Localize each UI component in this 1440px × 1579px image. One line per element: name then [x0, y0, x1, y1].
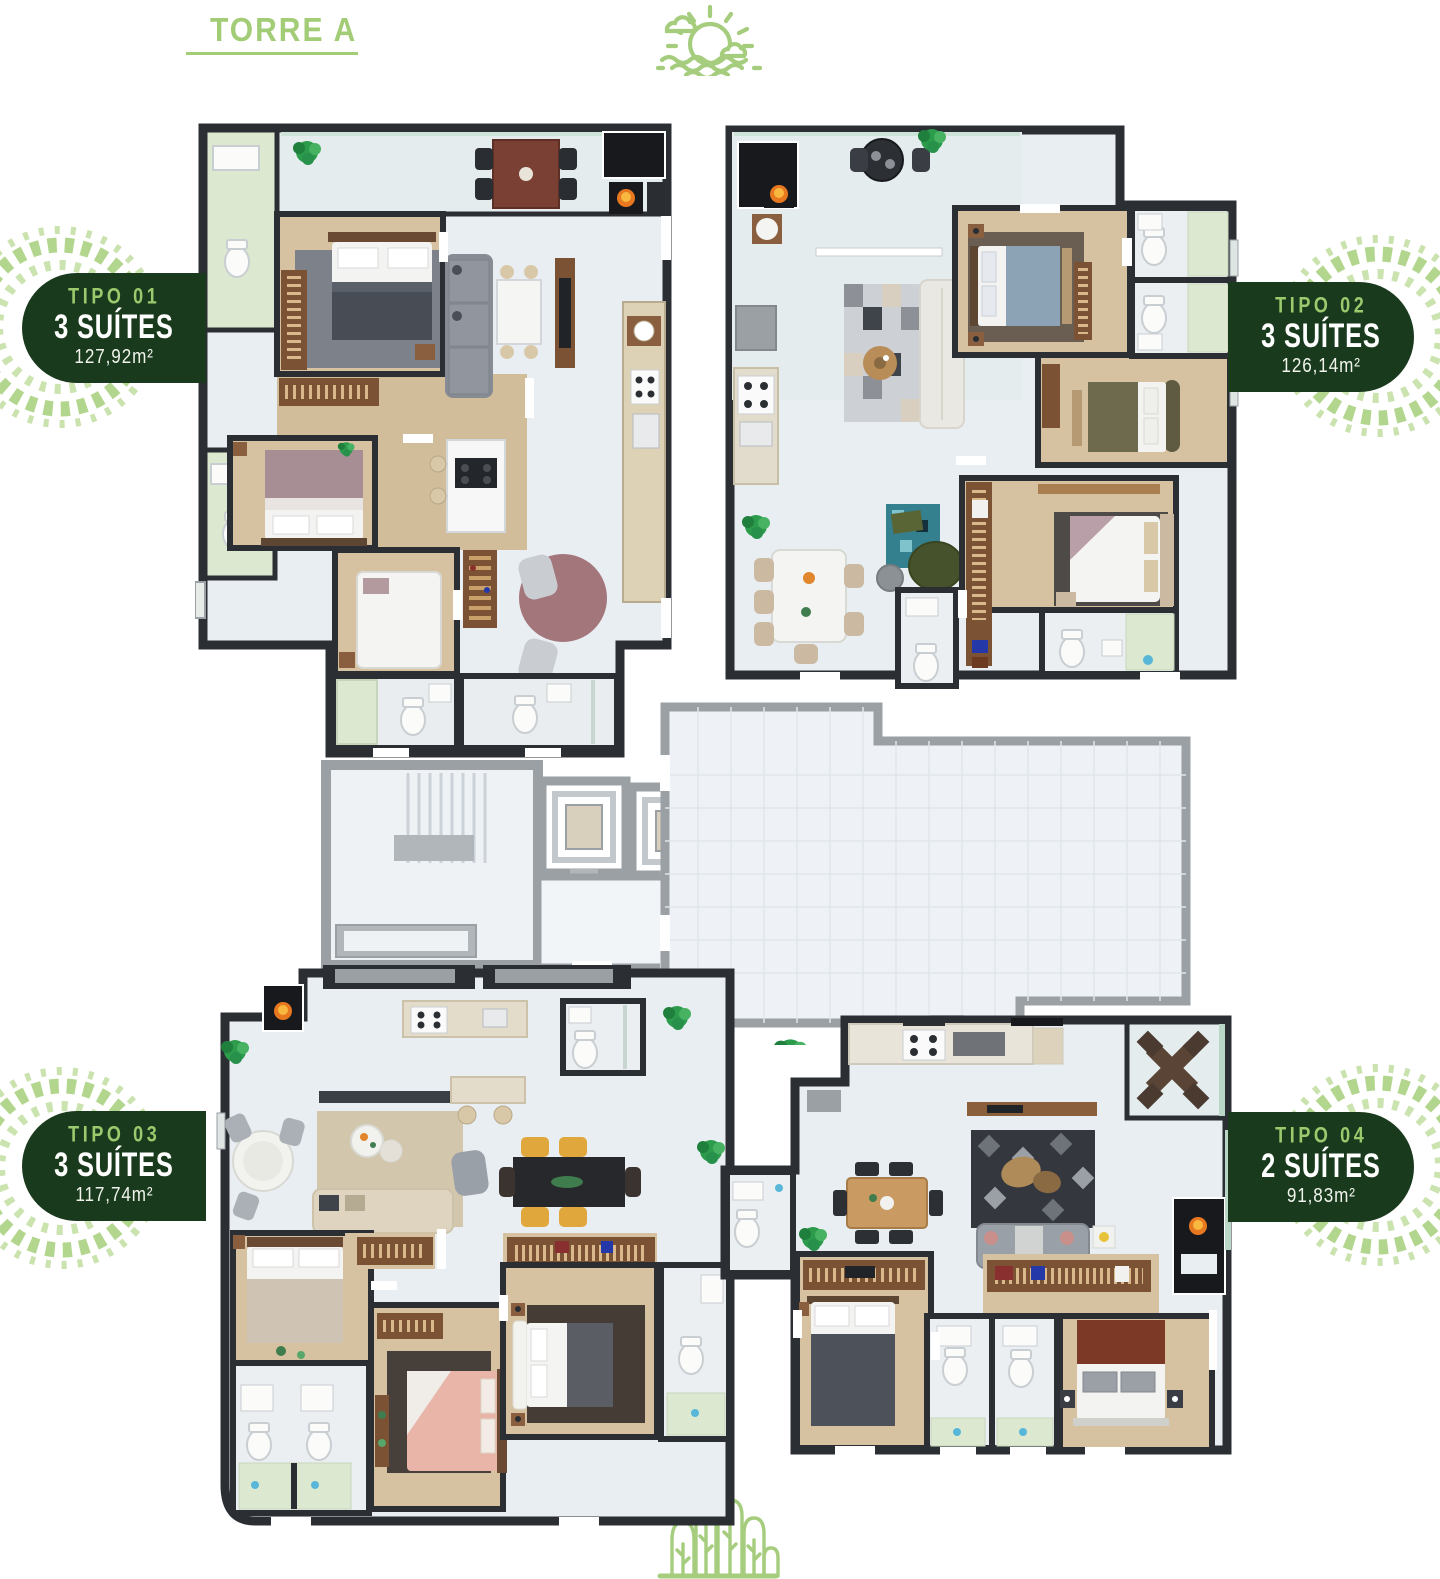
- bedroom-3: [503, 1233, 657, 1437]
- unit-badge-tipo-04: TIPO 04 2 SUÍTES 91,83m²: [1228, 1112, 1414, 1222]
- fireplace-icon: [263, 985, 303, 1031]
- window: [1209, 1310, 1217, 1370]
- unit-badge-tipo-03: TIPO 03 3 SUÍTES 117,74m²: [22, 1111, 206, 1221]
- bathroom-1: [205, 130, 277, 330]
- tv-console: [967, 1102, 1097, 1116]
- bathroom-2: [1132, 280, 1230, 356]
- bedroom-2: [371, 1305, 507, 1509]
- elevator-1: [542, 781, 626, 875]
- bathroom-2: [233, 1363, 369, 1513]
- bookshelf: [463, 550, 497, 628]
- master-bedroom: [277, 214, 443, 374]
- balcony-nub: [217, 1113, 225, 1149]
- unit-area-label: 126,14m²: [1281, 355, 1360, 379]
- unit-badge-tipo-02: TIPO 02 3 SUÍTES 126,14m²: [1228, 282, 1414, 392]
- bathroom-3: [1042, 610, 1176, 674]
- terrace: [277, 130, 665, 214]
- bedroom-1: [797, 1254, 931, 1448]
- floor-plan-tipo-02: [720, 120, 1240, 695]
- unit-area-label: 117,74m²: [75, 1184, 153, 1208]
- balcony-nub: [1230, 240, 1238, 276]
- dining-table: [772, 550, 846, 642]
- kitchen: [849, 1018, 1063, 1064]
- bathroom-small: [898, 590, 956, 686]
- wardrobe: [279, 378, 379, 406]
- unit-suites-label: 2 SUÍTES: [1261, 1145, 1381, 1188]
- kitchen-counter: [623, 302, 665, 602]
- tv-console: [319, 1091, 453, 1103]
- bathroom-1: [1132, 208, 1230, 280]
- bedroom-2: [230, 438, 375, 548]
- wardrobe: [345, 1233, 435, 1269]
- torre-a-floorplate-diagram: TORRE A TIPO 01 3 SUÍTES 127,92m²: [0, 0, 1440, 1579]
- armchair: [450, 1149, 490, 1197]
- unit-suites-label: 3 SUÍTES: [54, 306, 174, 349]
- bathroom-2: [927, 1316, 1057, 1448]
- bathroom-1: [563, 1001, 643, 1073]
- bedroom-2: [1038, 355, 1230, 465]
- terrace: [1127, 1022, 1225, 1118]
- floor-plan-tipo-04: [715, 1010, 1240, 1470]
- unit-area-label: 91,83m²: [1286, 1185, 1355, 1209]
- fireplace-icon: [603, 132, 665, 214]
- wardrobe: [966, 482, 992, 668]
- unit-suites-label: 3 SUÍTES: [1261, 315, 1381, 358]
- bathroom-1: [727, 1172, 793, 1273]
- fireplace-icon: [1173, 1198, 1225, 1294]
- bar-counter: [451, 1077, 525, 1103]
- bedroom-2: [1059, 1310, 1217, 1450]
- armchair: [909, 542, 963, 590]
- sideboard: [807, 1090, 841, 1112]
- sunset-icon: [650, 2, 770, 76]
- kitchen: [734, 368, 778, 484]
- outdoor-counter: [736, 306, 776, 350]
- balcony-nub: [195, 582, 205, 618]
- stairwell: [326, 765, 538, 965]
- wardrobe: [983, 1254, 1159, 1316]
- unit-suites-label: 3 SUÍTES: [54, 1144, 174, 1187]
- table: [497, 280, 541, 344]
- unit-area-label: 127,92m²: [74, 346, 153, 370]
- master-bedroom: [955, 208, 1130, 355]
- window: [816, 248, 942, 256]
- title-underline: [186, 52, 358, 55]
- fireplace-icon: [738, 142, 798, 208]
- page-title: TORRE A: [210, 12, 357, 50]
- unit-badge-tipo-01: TIPO 01 3 SUÍTES 127,92m²: [22, 273, 206, 383]
- floor-plan-tipo-01: [195, 120, 680, 760]
- floor-plan-tipo-03: [215, 965, 740, 1530]
